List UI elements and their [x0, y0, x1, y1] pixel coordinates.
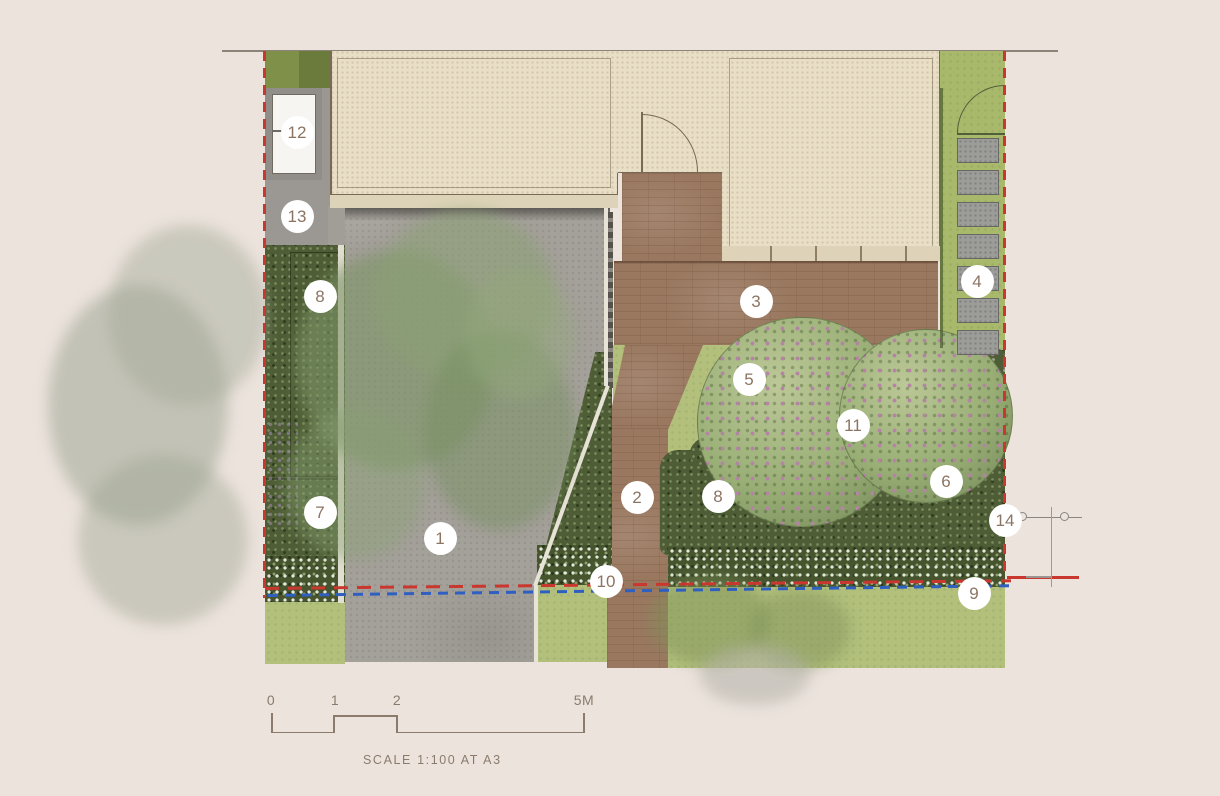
- gravel-board-strip: [608, 212, 613, 388]
- building-threshold-band-left: [330, 195, 618, 208]
- building-inner-outline-right: [729, 58, 933, 254]
- boundary-line-west: [263, 51, 266, 598]
- driveway-curb-bottom: [534, 585, 538, 663]
- scale-caption: SCALE 1:100 AT A3: [363, 753, 502, 767]
- building-wall-line: [617, 173, 619, 195]
- scale-bar-tick: [583, 713, 585, 733]
- plan-marker-5: 5: [733, 363, 766, 396]
- stepping-stone: [957, 202, 999, 227]
- plan-marker-12: 12: [281, 116, 314, 149]
- offsite-tree-canopy-left: [48, 225, 283, 625]
- scale-bar-segment: [333, 715, 397, 717]
- front-lawn-patch: [265, 51, 330, 88]
- scale-bar-segment: [396, 732, 584, 734]
- plan-marker-14: 14: [989, 504, 1022, 537]
- lawn-shade: [299, 51, 330, 88]
- boundary-return-overlay: [1026, 576, 1052, 579]
- scale-bar-tick: [396, 715, 398, 733]
- plan-marker-9: 9: [958, 577, 991, 610]
- threshold-tick: [770, 246, 772, 261]
- scale-bar-tick: [271, 713, 273, 733]
- plan-marker-3: 3: [740, 285, 773, 318]
- gate-symbol-guide-line: [1051, 507, 1052, 587]
- threshold-tick: [860, 246, 862, 261]
- plan-marker-1: 1: [424, 522, 457, 555]
- stepping-stone: [957, 234, 999, 259]
- plan-marker-4: 4: [961, 265, 994, 298]
- building-inner-outline-left: [337, 58, 611, 188]
- threshold-tick: [905, 246, 907, 261]
- scale-bar-segment: [271, 732, 334, 734]
- plan-marker-8: 8: [304, 280, 337, 313]
- plan-marker-8: 8: [702, 480, 735, 513]
- plan-marker-10: 10: [590, 565, 623, 598]
- scale-bar-tick: [333, 715, 335, 733]
- plan-marker-2: 2: [621, 481, 654, 514]
- building-wall-line: [330, 51, 332, 195]
- building-threshold-band-right: [722, 246, 940, 261]
- scale-tick-label-0: 0: [254, 692, 288, 708]
- plan-marker-11: 11: [837, 409, 870, 442]
- threshold-tick: [815, 246, 817, 261]
- stepping-stone: [957, 138, 999, 163]
- plan-marker-13: 13: [281, 200, 314, 233]
- scale-tick-label-2: 2: [380, 692, 414, 708]
- gate-symbol-post: [1060, 512, 1069, 521]
- side-gate-threshold: [957, 133, 1005, 135]
- stepping-stone: [957, 298, 999, 323]
- scale-tick-label-5M: 5M: [567, 692, 601, 708]
- plan-marker-6: 6: [930, 465, 963, 498]
- boundary-line-east: [1003, 51, 1006, 578]
- plan-marker-7: 7: [304, 496, 337, 529]
- garden-plan-canvas: 12345678891011121314 0125M SCALE 1:100 A…: [0, 0, 1220, 796]
- verge-lawn-mid: [537, 585, 607, 662]
- side-garden-hedge-line: [940, 88, 943, 348]
- entrance-path-paving: [622, 173, 722, 263]
- stepping-stone: [957, 170, 999, 195]
- gate-symbol-arrow: [1070, 517, 1082, 519]
- stepping-stone: [957, 330, 999, 355]
- scale-tick-label-1: 1: [318, 692, 352, 708]
